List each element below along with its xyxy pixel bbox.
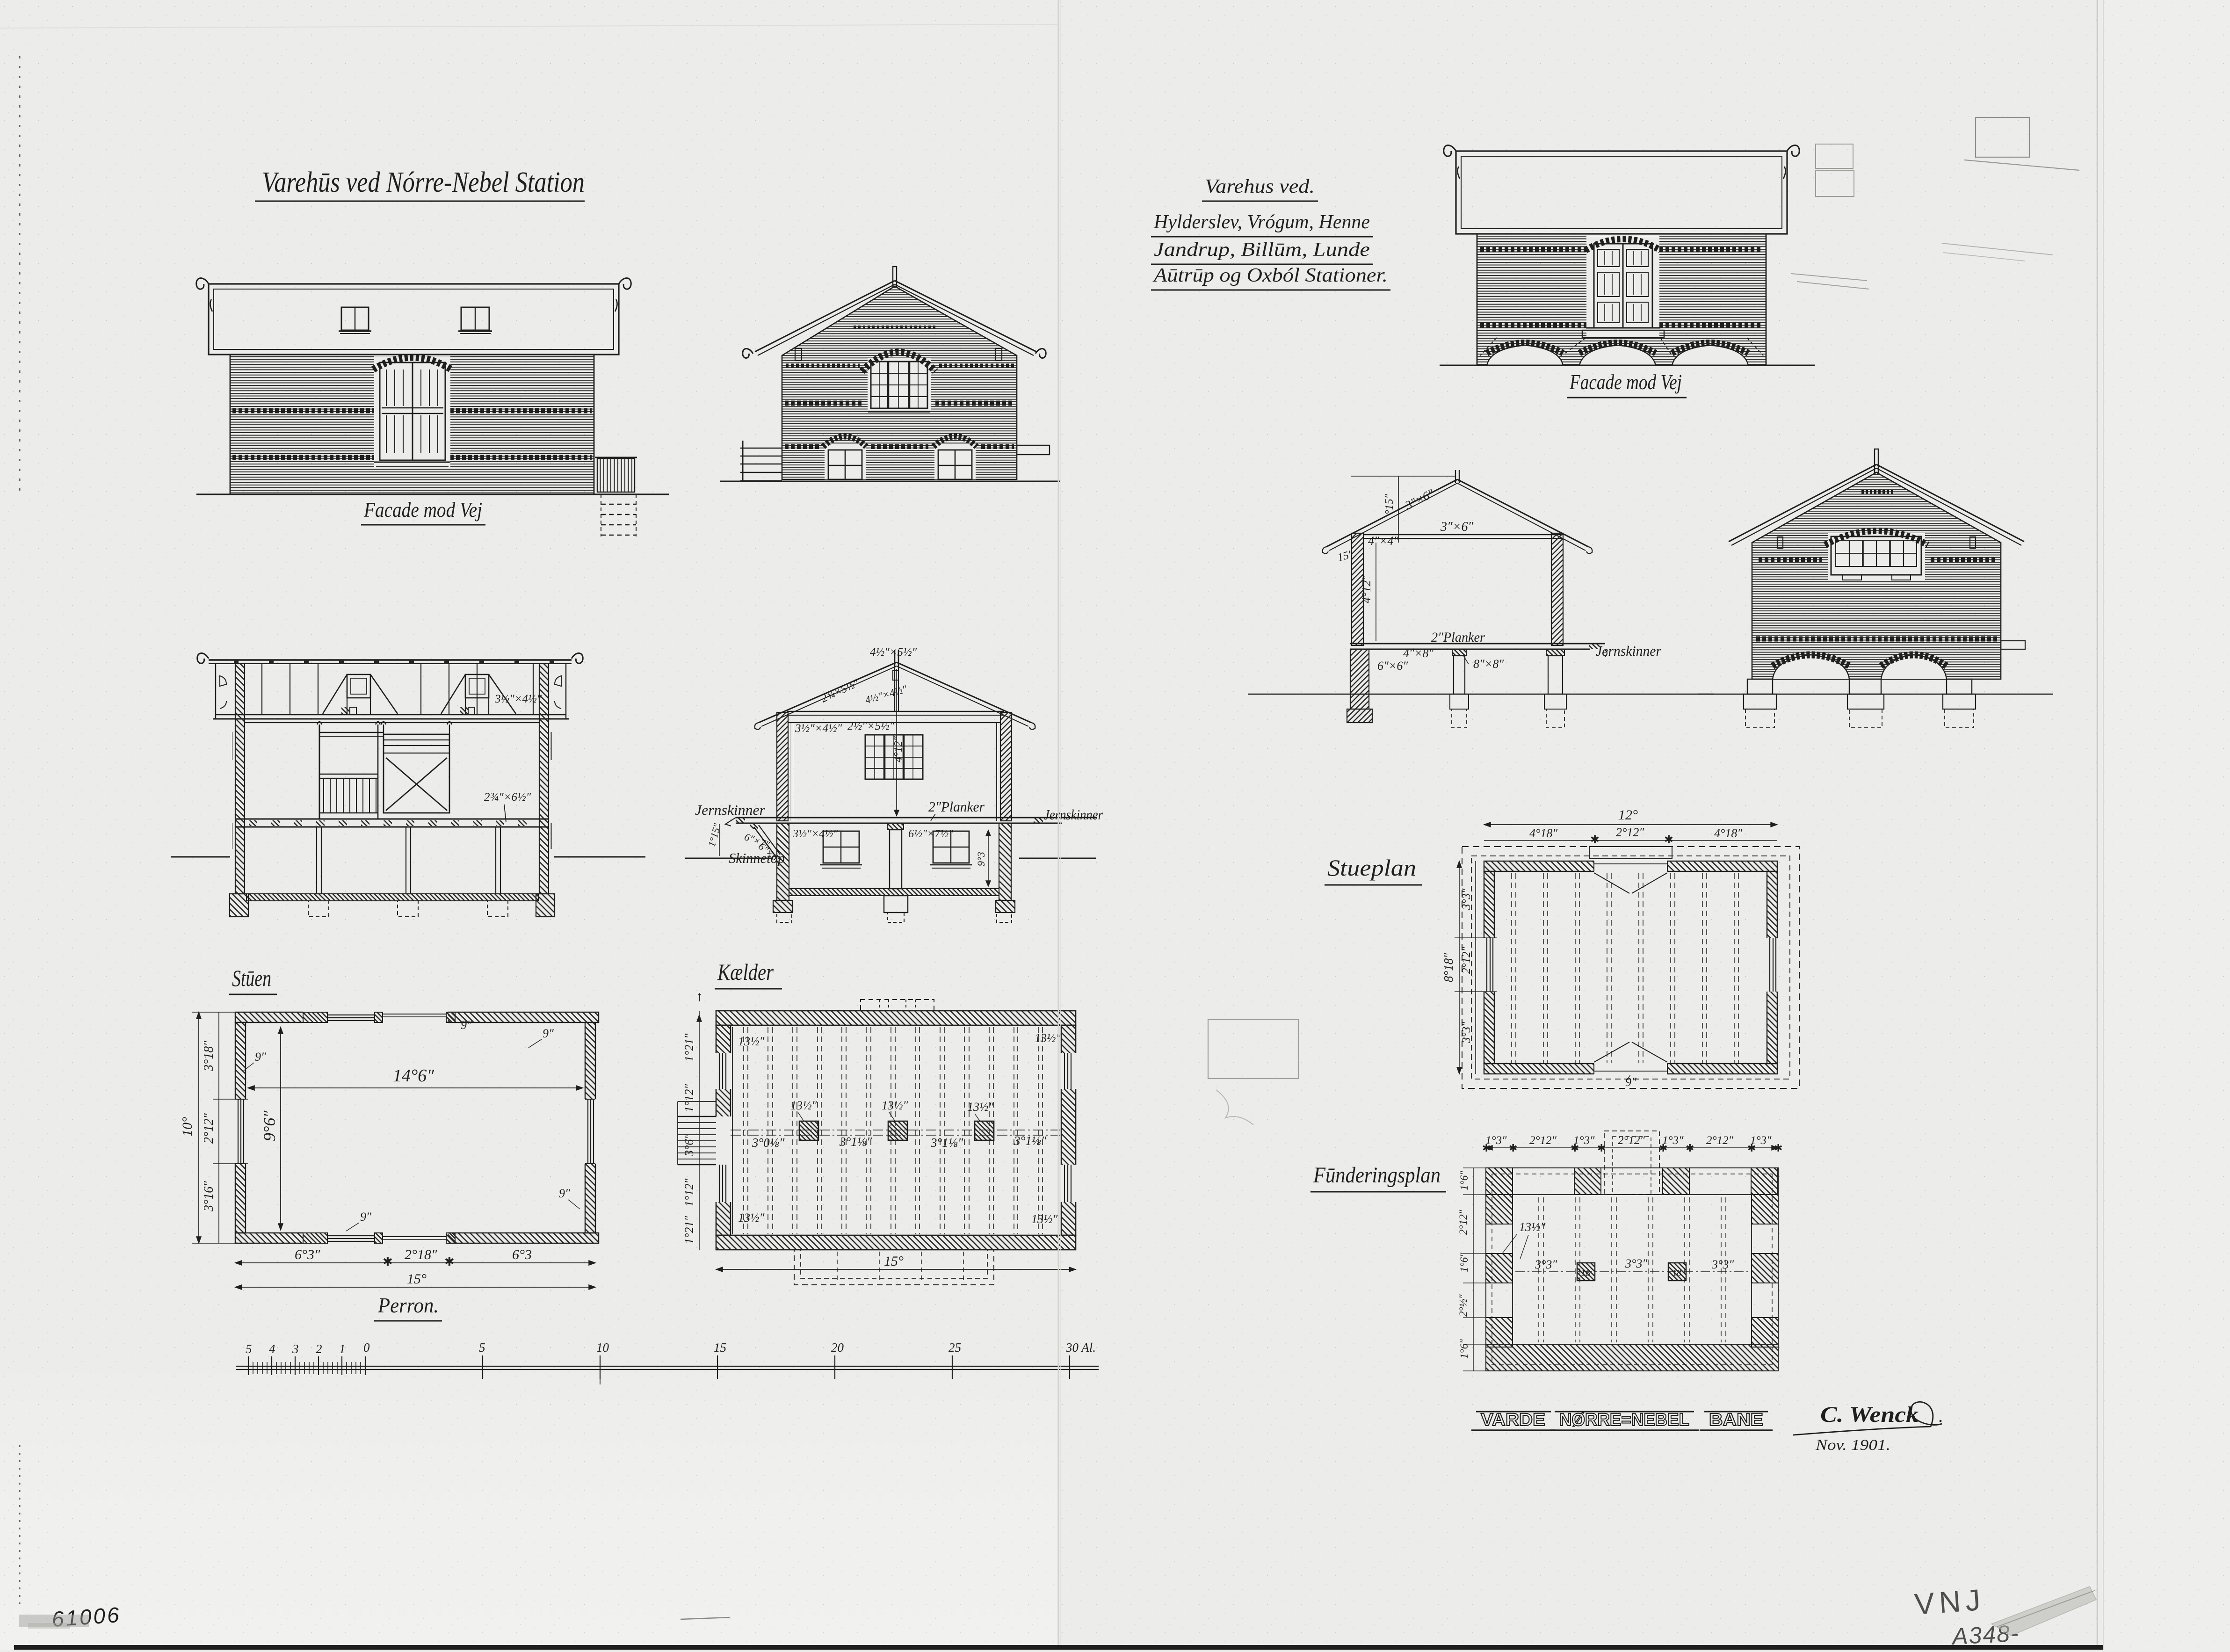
svg-text:30 Al.: 30 Al. [1065,1340,1096,1355]
svg-text:3°0⅛″: 3°0⅛″ [752,1136,785,1150]
svg-text:13½″: 13½″ [1519,1220,1546,1234]
svg-text:9″: 9″ [461,1018,472,1032]
svg-text:NØRRE=NEBEL: NØRRE=NEBEL [1559,1410,1689,1430]
svg-text:3°6″: 3°6″ [682,1134,696,1157]
svg-text:15°: 15° [884,1253,904,1269]
svg-text:°15″: °15″ [1383,493,1396,514]
svg-text:13½″: 13½″ [738,1035,765,1048]
svg-text:2″Planker: 2″Planker [928,798,985,815]
svg-text:15°: 15° [407,1271,427,1287]
svg-text:13½″: 13½″ [790,1099,818,1112]
svg-text:✱: ✱ [1664,834,1673,846]
svg-text:4°12″: 4°12″ [1360,575,1373,603]
svg-text:13½″: 13½″ [1031,1212,1058,1226]
svg-text:VARDE: VARDE [1481,1410,1545,1430]
svg-text:Varehus ved.: Varehus ved. [1205,176,1315,197]
svg-text:10: 10 [596,1340,609,1355]
svg-text:Kælder: Kælder [717,959,774,985]
svg-text:3°1⅛″: 3°1⅛″ [930,1136,963,1150]
svg-text:Jandrup, Billūm, Lunde: Jandrup, Billūm, Lunde [1154,239,1370,261]
svg-text:1°21″: 1°21″ [682,1216,696,1244]
svg-text:4°18″: 4°18″ [1529,826,1558,840]
svg-text:6″×6″: 6″×6″ [1377,659,1408,673]
svg-text:10°: 10° [180,1117,195,1137]
svg-text:✱: ✱ [383,1255,393,1268]
svg-text:3°3″: 3°3″ [1460,1022,1473,1043]
svg-text:3°1⅛″: 3°1⅛″ [1014,1134,1047,1148]
svg-text:2°12″: 2°12″ [1460,947,1473,974]
svg-text:✱: ✱ [1571,1142,1579,1154]
svg-text:15: 15 [714,1340,726,1355]
svg-text:2¾″×6½″: 2¾″×6½″ [484,791,531,804]
svg-text:BANE: BANE [1709,1410,1763,1430]
svg-text:2°12″: 2°12″ [1618,1134,1645,1147]
svg-text:Jernskinner: Jernskinner [695,802,766,818]
svg-text:Fūnderingsplan: Fūnderingsplan [1313,1163,1441,1188]
svg-text:✱: ✱ [444,1255,455,1268]
svg-text:Perron.: Perron. [377,1293,439,1317]
svg-text:✱: ✱ [1747,1142,1756,1154]
svg-text:3″×6″: 3″×6″ [1440,520,1474,534]
svg-text:3°3″: 3°3″ [1460,888,1473,910]
svg-text:4°12″: 4°12″ [892,736,905,762]
svg-text:3½″×4½″: 3½″×4½″ [795,722,842,735]
svg-text:Aūtrūp og Oxból Stationer.: Aūtrūp og Oxból Stationer. [1152,265,1388,286]
svg-text:9″: 9″ [360,1210,372,1224]
svg-text:2°12″: 2°12″ [1457,1210,1469,1235]
svg-text:3: 3 [292,1342,299,1356]
svg-text:1°21″: 1°21″ [682,1033,696,1062]
svg-text:2°18″: 2°18″ [405,1247,437,1262]
svg-text:2°½″: 2°½″ [1457,1294,1469,1317]
svg-text:2°12″: 2°12″ [1706,1134,1733,1147]
svg-text:1: 1 [339,1342,346,1356]
svg-text:1°6″: 1°6″ [1458,1253,1470,1272]
svg-text:6°3: 6°3 [512,1247,532,1262]
svg-text:2½″×5½″: 2½″×5½″ [847,720,895,732]
svg-text:25: 25 [948,1340,961,1355]
svg-text:1°12″: 1°12″ [682,1178,696,1207]
svg-text:6½″×7½″: 6½″×7½″ [908,828,954,840]
svg-text:3°1⅛″: 3°1⅛″ [839,1135,872,1149]
svg-text:13½″: 13½″ [738,1211,765,1225]
svg-text:2°12″: 2°12″ [1529,1134,1557,1147]
svg-text:C. Wenck: C. Wenck [1820,1402,1919,1427]
svg-text:Nov. 1901.: Nov. 1901. [1815,1437,1890,1454]
svg-text:0: 0 [363,1340,370,1355]
svg-text:Stueplan: Stueplan [1327,855,1416,881]
svg-text:9°3: 9°3 [975,852,987,866]
svg-text:9″: 9″ [255,1050,267,1064]
svg-text:✱: ✱ [1509,1142,1517,1154]
svg-text:14°6″: 14°6″ [393,1066,434,1086]
svg-text:2: 2 [316,1342,322,1356]
svg-text:5: 5 [479,1340,485,1355]
svg-text:Jernskinner: Jernskinner [1044,806,1103,823]
svg-text:3°3″: 3°3″ [1625,1257,1648,1270]
svg-text:✱: ✱ [1590,834,1600,846]
svg-text:1°12″: 1°12″ [682,1084,696,1112]
svg-text:12°: 12° [1618,807,1638,823]
svg-text:Facade mod Vej: Facade mod Vej [1569,370,1682,394]
svg-text:✱: ✱ [1686,1142,1694,1154]
svg-text:Hylderslev, Vrógum, Henne: Hylderslev, Vrógum, Henne [1153,211,1370,233]
svg-text:4½″×5½″: 4½″×5½″ [870,646,917,659]
svg-text:6°3″: 6°3″ [295,1247,320,1262]
svg-text:2″Planker: 2″Planker [1431,630,1485,645]
svg-text:9″: 9″ [559,1187,571,1200]
svg-text:9″: 9″ [543,1027,554,1040]
svg-text:2°12″: 2°12″ [202,1113,216,1144]
svg-text:Varehūs ved Nórre-Nebel Statio: Varehūs ved Nórre-Nebel Station [262,167,585,198]
svg-text:13½″: 13½″ [882,1099,909,1112]
svg-text:20: 20 [831,1340,844,1355]
svg-text:18: 18 [1581,1268,1590,1278]
svg-text:1°6″: 1°6″ [1458,1171,1470,1190]
svg-text:1°6″: 1°6″ [1458,1339,1470,1359]
svg-text:3°16″: 3°16″ [202,1181,216,1212]
svg-text:Facade mod Vej: Facade mod Vej [363,498,482,522]
svg-text:2°12″: 2°12″ [1616,826,1644,839]
svg-text:3°18″: 3°18″ [202,1041,216,1072]
svg-text:8°18″: 8°18″ [1441,953,1455,982]
svg-text:4: 4 [269,1342,275,1356]
svg-text:↑: ↑ [696,989,703,1004]
svg-text:✱: ✱ [1659,1142,1667,1154]
svg-text:.: . [1939,1405,1943,1426]
svg-text:9″: 9″ [1625,1075,1637,1089]
svg-text:4″×4″: 4″×4″ [1368,534,1399,548]
svg-text:4″×8″: 4″×8″ [1403,646,1434,660]
svg-text:8″×8″: 8″×8″ [1473,657,1504,671]
svg-text:13½″: 13½″ [1035,1031,1062,1045]
svg-text:3°3″: 3°3″ [1711,1258,1734,1271]
svg-text:3°3″: 3°3″ [1535,1258,1557,1271]
svg-text:9°6″: 9°6″ [260,1110,279,1141]
svg-text:Stūen: Stūen [232,965,271,991]
svg-text:3½″×4½″: 3½″×4½″ [494,693,542,705]
svg-text:5: 5 [246,1342,252,1356]
svg-text:3½″×4½″: 3½″×4½″ [792,828,838,840]
svg-text:13½″: 13½″ [967,1100,994,1114]
svg-text:4°18″: 4°18″ [1714,826,1743,840]
svg-text:18: 18 [1672,1268,1681,1278]
svg-text:VNJ: VNJ [1913,1583,1986,1621]
